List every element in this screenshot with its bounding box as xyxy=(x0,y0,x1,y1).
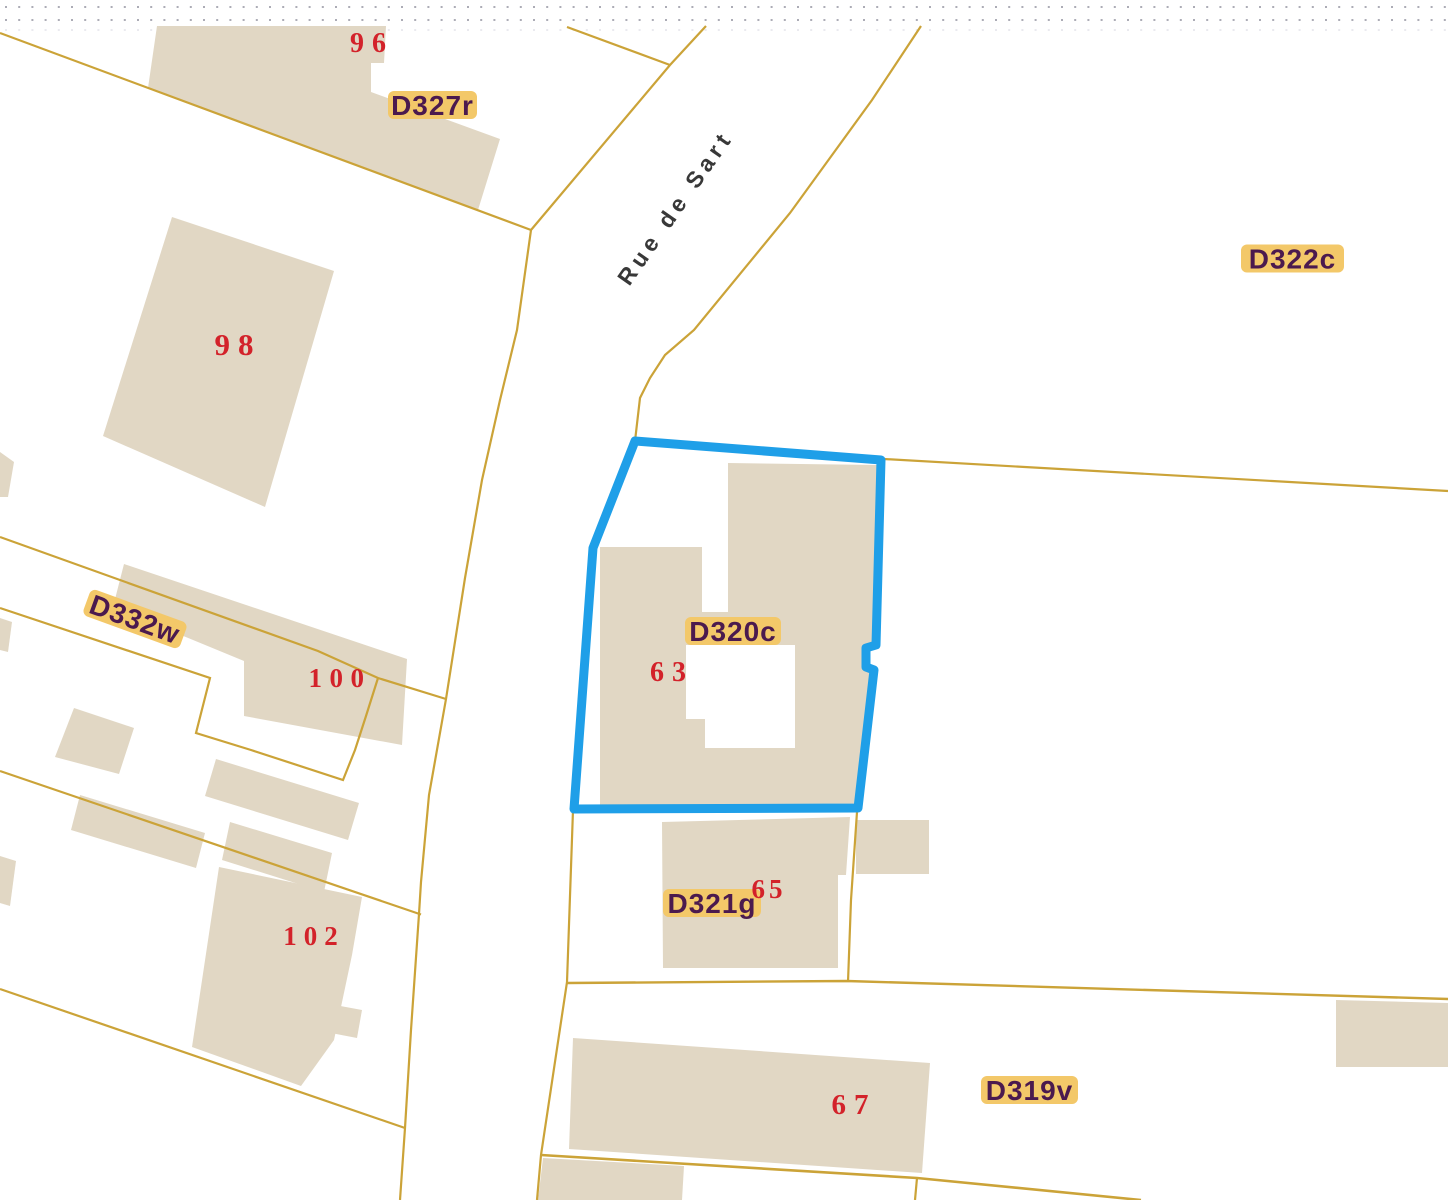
svg-text:D327r: D327r xyxy=(391,90,474,121)
svg-text:D322c: D322c xyxy=(1249,244,1337,275)
svg-text:96: 96 xyxy=(350,28,394,59)
svg-text:D319v: D319v xyxy=(986,1075,1074,1106)
svg-text:D321g: D321g xyxy=(667,888,756,919)
svg-text:98: 98 xyxy=(215,327,262,362)
svg-text:63: 63 xyxy=(650,657,694,688)
svg-text:67: 67 xyxy=(832,1089,877,1121)
svg-text:D320c: D320c xyxy=(689,616,777,647)
svg-text:102: 102 xyxy=(283,921,345,951)
svg-text:65: 65 xyxy=(752,874,787,904)
svg-text:100: 100 xyxy=(309,663,372,693)
